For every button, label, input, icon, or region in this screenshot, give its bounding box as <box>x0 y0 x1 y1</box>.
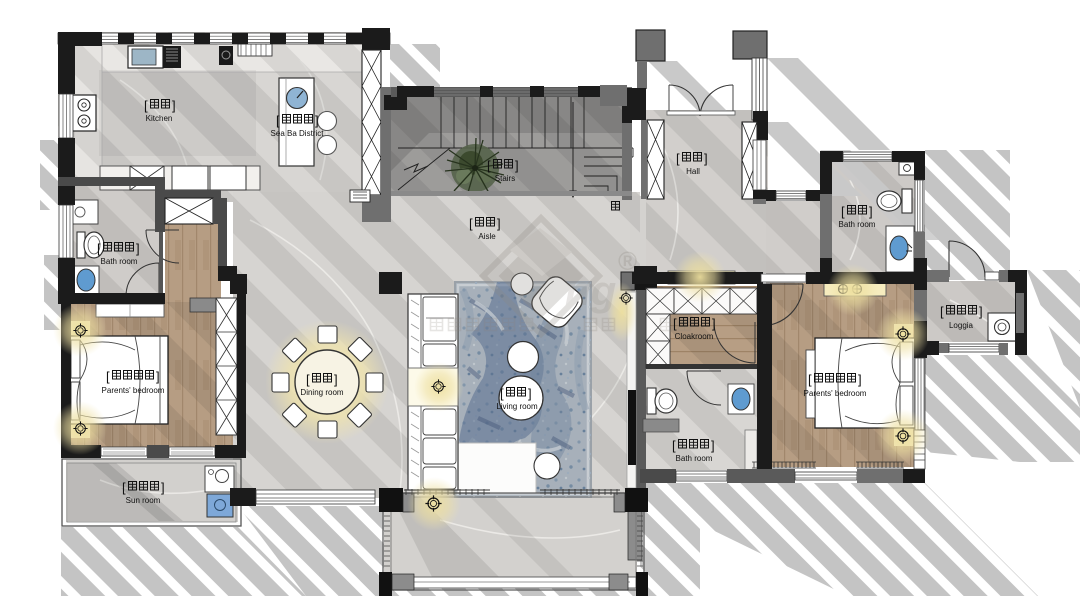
svg-text:Stairs: Stairs <box>495 174 515 183</box>
svg-text:®: ® <box>618 246 637 276</box>
svg-text:[: [ <box>487 158 491 173</box>
svg-text:]: ] <box>528 386 532 401</box>
svg-text:]: ] <box>334 372 338 387</box>
svg-text:[: [ <box>672 438 676 453</box>
svg-text:Hall: Hall <box>686 167 700 176</box>
svg-text:[: [ <box>276 113 280 128</box>
svg-text:[: [ <box>306 372 310 387</box>
svg-text:[: [ <box>469 216 473 231</box>
svg-text:Loggia: Loggia <box>949 321 974 330</box>
svg-text:]: ] <box>136 241 140 256</box>
svg-text:[: [ <box>940 304 944 319</box>
svg-text:]: ] <box>979 304 983 319</box>
svg-text:Parents' bedroom: Parents' bedroom <box>804 389 867 398</box>
svg-text:]: ] <box>515 158 519 173</box>
svg-text:]: ] <box>315 113 319 128</box>
svg-text:Sun room: Sun room <box>126 496 161 505</box>
svg-text:Sea Ba District: Sea Ba District <box>271 129 325 138</box>
svg-text:[: [ <box>673 316 677 331</box>
svg-text:Bath room: Bath room <box>839 220 876 229</box>
svg-text:Aisle: Aisle <box>478 232 496 241</box>
svg-text:]: ] <box>712 316 716 331</box>
svg-text:[: [ <box>808 372 812 387</box>
svg-text:]: ] <box>858 372 862 387</box>
svg-text:[: [ <box>841 204 845 219</box>
svg-text:]: ] <box>172 98 176 113</box>
svg-text:[: [ <box>106 369 110 384</box>
svg-text:[: [ <box>97 241 101 256</box>
svg-text:Living room: Living room <box>496 402 538 411</box>
svg-text:Kitchen: Kitchen <box>146 114 173 123</box>
svg-text:Dining room: Dining room <box>300 388 343 397</box>
svg-text:[: [ <box>500 386 504 401</box>
svg-text:]: ] <box>497 216 501 231</box>
svg-text:]: ] <box>161 480 165 495</box>
svg-text:[: [ <box>676 151 680 166</box>
svg-text:]: ] <box>711 438 715 453</box>
svg-text:[: [ <box>144 98 148 113</box>
svg-text:]: ] <box>156 369 160 384</box>
svg-text:Parents' bedroom: Parents' bedroom <box>102 386 165 395</box>
svg-text:Bath room: Bath room <box>676 454 713 463</box>
svg-text:Cloakroom: Cloakroom <box>675 332 714 341</box>
svg-text:Bath room: Bath room <box>101 257 138 266</box>
svg-text:]: ] <box>704 151 708 166</box>
svg-text:[: [ <box>122 480 126 495</box>
svg-text:]: ] <box>869 204 873 219</box>
svg-text:ng: ng <box>565 267 616 314</box>
